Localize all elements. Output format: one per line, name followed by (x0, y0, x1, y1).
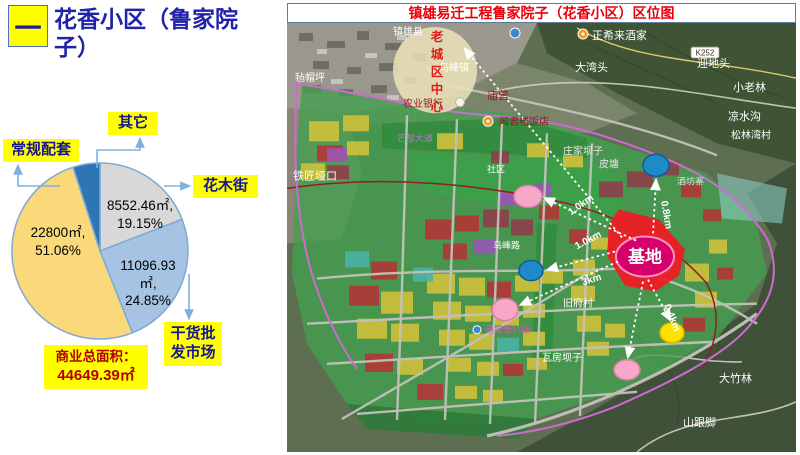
old-town-char-3: 中 (431, 82, 444, 97)
pie-callout-huamujie: 花木街 (193, 175, 258, 198)
map-label-5: 凉水沟 (728, 109, 761, 123)
map-label-10: 庙营 (487, 88, 509, 102)
map-label-6: 松林湾村 (731, 128, 771, 141)
map-label-7: 毡帽坪 (295, 71, 325, 84)
svg-text:K252: K252 (696, 49, 715, 58)
pink-circle-south (614, 360, 640, 380)
location-map: 老城区中心 K252 基地 (287, 23, 796, 452)
map-label-1: 正希来酒家 (592, 28, 647, 42)
map-label-14: 皮塘 (599, 157, 619, 170)
map-label-20: 易捷便利店 (485, 324, 530, 335)
location-map-panel: 镇雄易迁工程鲁家院子（花香小区）区位图 (287, 3, 796, 453)
blue-poi-icon (510, 28, 520, 38)
map-label-3: 迎地头 (697, 57, 730, 70)
map-label-4: 小老林 (733, 80, 766, 94)
map-label-17: 酒坊寨 (677, 175, 704, 186)
old-town-char-0: 老 (430, 29, 444, 44)
map-label-13: 庄家坝子 (563, 144, 603, 157)
map-label-22: 大竹林 (719, 371, 752, 385)
site-label: 基地 (627, 247, 662, 267)
pink-circle-mid (492, 299, 518, 321)
pin-dot (486, 120, 489, 123)
pie-callout-qita: 其它 (108, 112, 158, 135)
map-title: 镇雄易迁工程鲁家院子（花香小区）区位图 (287, 3, 796, 23)
map-label-0: 镇雄县 (393, 25, 423, 38)
map-label-15: 社区 (487, 163, 505, 174)
map-label-11: 闻君楼饭店 (499, 115, 549, 128)
map-label-18: 乌峰路 (493, 240, 520, 251)
total-area-caption: 商业总面积： (44, 348, 148, 366)
section-number-badge: 一 (8, 5, 48, 47)
total-area-box: 商业总面积： 44649.39㎡ (44, 345, 148, 389)
map-label-23: 山跟脚 (683, 415, 716, 429)
page-title: 花香小区（鲁家院子） (54, 6, 262, 61)
map-label-12: 铁匠垭口 (293, 169, 337, 182)
bank-poi-icon (456, 98, 465, 107)
map-label-19: 旧府村 (563, 297, 593, 310)
pin-dot (581, 32, 584, 35)
blue-circle-north (643, 154, 669, 176)
pie-callout-ganhuo: 干货批发市场 (164, 322, 222, 366)
pie-value-label-1: 11096.93 ㎡, 24.85% (98, 257, 198, 310)
store-poi-icon (473, 326, 481, 334)
pie-value-label-2: 22800㎡, 51.06% (6, 224, 110, 259)
map-label-16: 芒部大道 (397, 132, 433, 143)
map-label-9: 农业银行 (403, 97, 443, 110)
old-town-char-1: 城 (431, 47, 444, 62)
map-label-2: 大湾头 (575, 60, 608, 74)
slide: { "slide": { "badge": "一", "title": "花香小… (0, 0, 800, 455)
pink-circle-upper (514, 185, 542, 207)
map-label-8: 乌峰镇 (439, 61, 469, 74)
pie-callout-changgui: 常规配套 (3, 139, 79, 162)
road-badge: K252 (691, 47, 719, 58)
blue-circle-mid (519, 261, 543, 281)
map-label-21: 瓦房坝子 (542, 351, 582, 364)
total-area-value: 44649.39㎡ (44, 366, 148, 386)
